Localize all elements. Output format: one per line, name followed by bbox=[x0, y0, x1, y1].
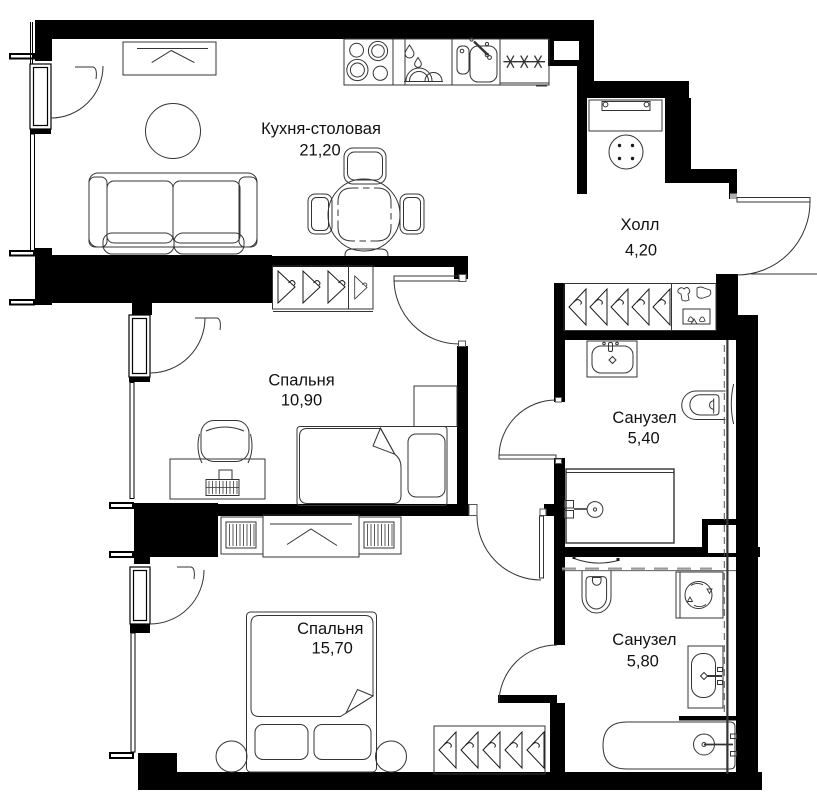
svg-text:Холл: Холл bbox=[621, 216, 660, 234]
svg-text:Санузел: Санузел bbox=[612, 631, 676, 649]
svg-text:21,20: 21,20 bbox=[299, 142, 340, 160]
svg-text:Кухня-столовая: Кухня-столовая bbox=[261, 120, 381, 138]
svg-text:5,40: 5,40 bbox=[628, 430, 660, 448]
svg-text:Спальня: Спальня bbox=[297, 620, 363, 638]
svg-text:5,80: 5,80 bbox=[627, 653, 659, 671]
svg-text:Спальня: Спальня bbox=[268, 372, 334, 390]
svg-text:10,90: 10,90 bbox=[281, 392, 322, 410]
svg-text:Санузел: Санузел bbox=[612, 409, 676, 427]
svg-text:15,70: 15,70 bbox=[312, 640, 353, 658]
svg-text:4,20: 4,20 bbox=[625, 242, 657, 260]
